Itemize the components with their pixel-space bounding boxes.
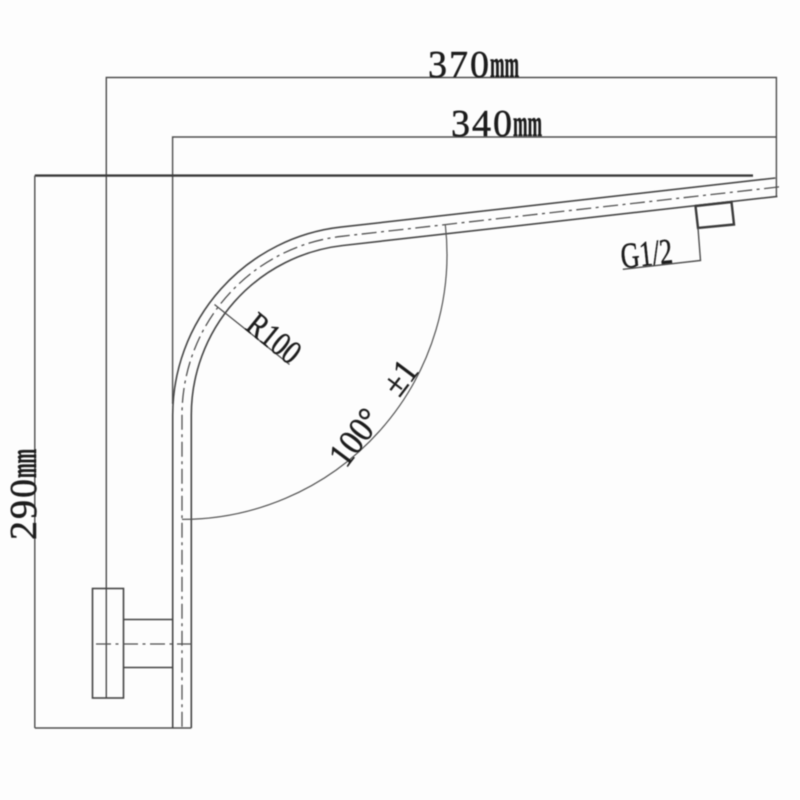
svg-text:340: 340	[451, 103, 514, 145]
svg-text:mm: mm	[513, 104, 542, 145]
svg-text:370: 370	[428, 44, 491, 86]
svg-text:mm: mm	[490, 45, 519, 86]
svg-text:mm: mm	[4, 449, 45, 478]
svg-text:290: 290	[3, 477, 45, 540]
svg-text:G1/2: G1/2	[619, 231, 675, 276]
